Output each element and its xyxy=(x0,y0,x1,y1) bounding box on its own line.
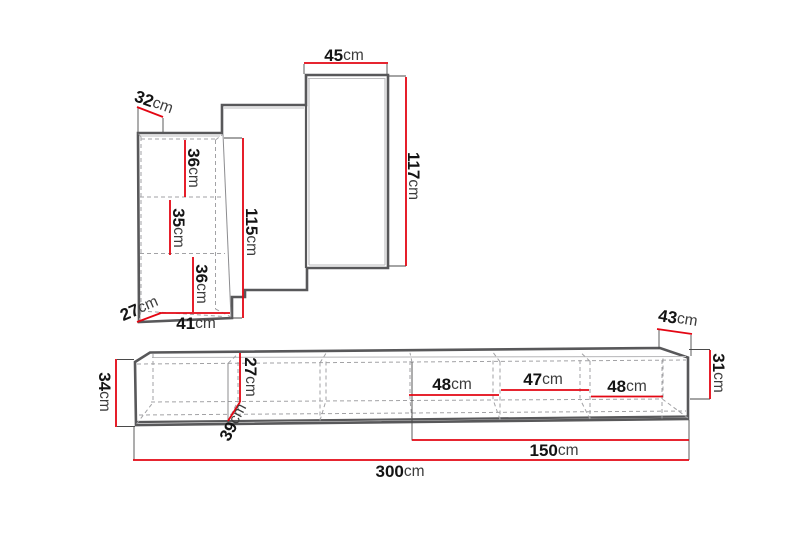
dim-label-36cm-bottom: 36cm xyxy=(193,264,212,304)
dim-label-47cm: 47cm xyxy=(523,370,563,389)
dim-label-27cm-bench: 27cm xyxy=(242,357,261,397)
top-unit-outline xyxy=(138,75,388,322)
dim-label-150cm: 150cm xyxy=(529,441,578,460)
dim-label-43cm: 43cm xyxy=(657,306,699,331)
dim-label-117cm: 117cm xyxy=(405,152,424,200)
dimension-diagram: 32cm 45cm 117cm 115cm 36cm 35cm 36cm 27c… xyxy=(0,0,800,533)
dim-label-115cm: 115cm xyxy=(243,208,262,256)
dim-label-48cm-left: 48cm xyxy=(432,375,472,394)
dim-label-36cm-top: 36cm xyxy=(185,148,204,188)
dim-label-41cm: 41cm xyxy=(176,314,216,333)
diagram-svg: 32cm 45cm 117cm 115cm 36cm 35cm 36cm 27c… xyxy=(0,0,800,533)
bottom-unit xyxy=(135,348,688,425)
dim-label-48cm-right: 48cm xyxy=(607,377,647,396)
dim-line-43 xyxy=(657,329,692,334)
dim-label-34cm: 34cm xyxy=(96,372,115,412)
dim-label-45cm: 45cm xyxy=(324,46,364,65)
top-unit xyxy=(138,75,388,322)
dim-label-300cm: 300cm xyxy=(375,462,424,481)
dim-label-35cm: 35cm xyxy=(170,208,189,248)
dim-label-31cm: 31cm xyxy=(710,353,729,393)
